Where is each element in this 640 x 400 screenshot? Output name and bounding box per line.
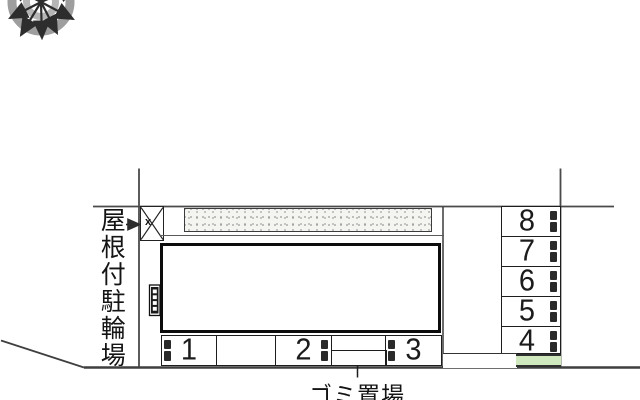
space-number: 7 [519, 236, 535, 266]
garbage-label: ゴミ置場 [309, 376, 405, 400]
parking-space-2: 2 [275, 336, 331, 365]
green-planting-strip [516, 354, 561, 367]
wheel-stop-marker [321, 336, 329, 365]
parking-column-right: 8 7 6 5 4 [501, 206, 561, 354]
eave-line [160, 235, 444, 236]
space-number: 6 [519, 266, 535, 296]
compass-rose-icon [9, 0, 76, 38]
planting-strip [184, 208, 432, 232]
angled-boundary-line [1, 341, 84, 368]
wheel-stop-marker [550, 207, 558, 236]
bicycle-parking-marker: x [145, 217, 151, 228]
parking-space-1: 1 [162, 336, 216, 365]
parking-row-bottom: 1 2 3 [161, 335, 442, 366]
parking-space-7: 7 [502, 236, 560, 266]
parking-space-5: 5 [502, 296, 560, 326]
space-number: 1 [181, 335, 197, 365]
walkway-strip [443, 353, 517, 368]
space-number: 8 [519, 206, 535, 236]
bicycle-parking-label: 屋根付駐輪場 [98, 207, 124, 369]
wheel-stop-marker [550, 267, 558, 296]
wheel-stop-marker [550, 327, 558, 356]
garbage-enclosure [331, 350, 387, 366]
entrance-steps-icon [150, 285, 161, 316]
space-number: 5 [519, 296, 535, 326]
building-outline [160, 243, 441, 333]
wheel-stop-marker [388, 336, 396, 365]
parking-space-6: 6 [502, 266, 560, 296]
space-number: 3 [405, 335, 421, 365]
wheel-stop-marker [550, 237, 558, 266]
parking-space-4: 4 [502, 326, 560, 356]
parking-space-8: 8 [502, 207, 560, 236]
wheel-stop-marker [164, 336, 172, 365]
garbage-cell [331, 336, 385, 365]
site-plan: 屋根付駐輪場 x 8 7 6 5 4 [0, 0, 640, 400]
space-number: 2 [295, 335, 311, 365]
wheel-stop-marker [550, 297, 558, 326]
parking-space-3: 3 [385, 336, 441, 365]
space-number: 4 [519, 326, 535, 356]
empty-bay [216, 336, 275, 365]
